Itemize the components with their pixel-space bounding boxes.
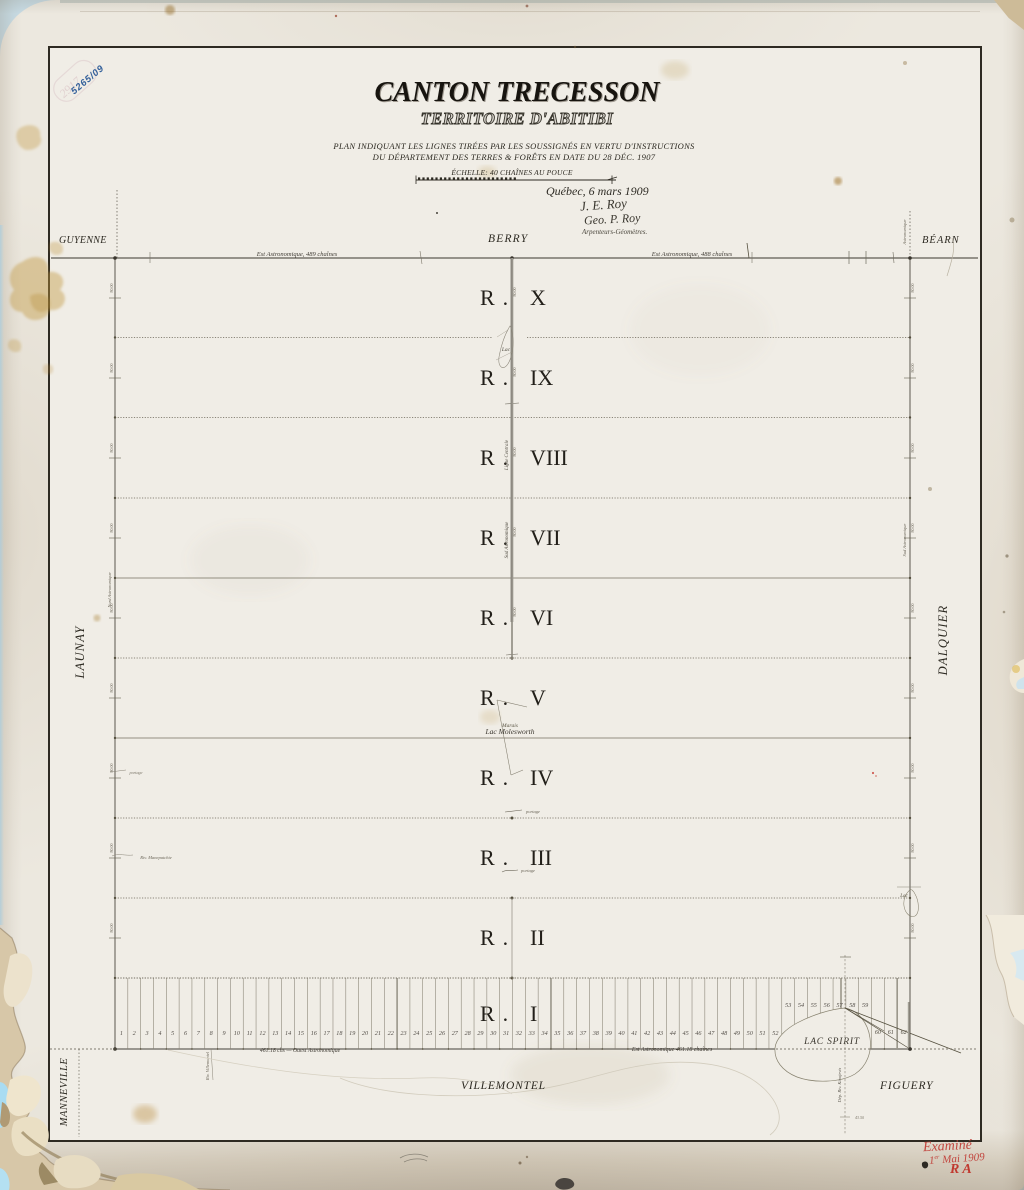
svg-text:LAC SPIRIT: LAC SPIRIT bbox=[803, 1037, 860, 1047]
svg-text:59: 59 bbox=[862, 1002, 868, 1009]
svg-text:80.00: 80.00 bbox=[109, 764, 114, 773]
svg-text:20: 20 bbox=[362, 1030, 369, 1037]
svg-text:28: 28 bbox=[465, 1030, 472, 1037]
svg-text:portage: portage bbox=[128, 770, 142, 775]
svg-text:30: 30 bbox=[489, 1030, 497, 1037]
svg-text:22: 22 bbox=[388, 1030, 394, 1037]
svg-text:60: 60 bbox=[875, 1030, 881, 1036]
svg-text:Dép. Riv. Kinojevis: Dép. Riv. Kinojevis bbox=[837, 1067, 842, 1103]
svg-text:37: 37 bbox=[579, 1030, 587, 1037]
svg-text:R .: R . bbox=[480, 605, 509, 630]
svg-text:VI: VI bbox=[530, 605, 553, 630]
svg-text:18: 18 bbox=[336, 1030, 343, 1037]
svg-text:39: 39 bbox=[605, 1030, 612, 1037]
svg-text:80.00: 80.00 bbox=[910, 444, 915, 453]
svg-text:Sud Astronomique: Sud Astronomique bbox=[505, 521, 510, 558]
svg-text:51: 51 bbox=[759, 1030, 765, 1037]
svg-text:31: 31 bbox=[502, 1030, 509, 1037]
svg-text:41: 41 bbox=[631, 1030, 637, 1037]
svg-text:Astronomique: Astronomique bbox=[902, 219, 907, 245]
svg-text:Est Astronomique, 488 chaînes: Est Astronomique, 488 chaînes bbox=[651, 251, 733, 258]
svg-text:46: 46 bbox=[695, 1030, 702, 1037]
svg-text:X: X bbox=[530, 285, 546, 310]
svg-text:IX: IX bbox=[530, 365, 553, 390]
svg-text:25: 25 bbox=[426, 1030, 432, 1037]
svg-text:48: 48 bbox=[721, 1030, 728, 1037]
svg-text:49: 49 bbox=[734, 1030, 740, 1037]
svg-text:53: 53 bbox=[785, 1002, 791, 1009]
svg-text:80.00: 80.00 bbox=[109, 844, 114, 853]
svg-text:54: 54 bbox=[798, 1002, 804, 1009]
svg-text:Est Astronomique 461.18 chaîn: Est Astronomique 461.18 chaînes bbox=[631, 1046, 713, 1053]
svg-text:55: 55 bbox=[811, 1002, 817, 1009]
svg-text:80.00: 80.00 bbox=[910, 364, 915, 373]
svg-text:80.00: 80.00 bbox=[109, 364, 114, 373]
svg-text:Lac Molesworth: Lac Molesworth bbox=[485, 727, 535, 736]
svg-text:80.00: 80.00 bbox=[910, 764, 915, 773]
svg-text:I: I bbox=[530, 1001, 537, 1026]
svg-text:80.00: 80.00 bbox=[109, 444, 114, 453]
svg-text:VIII: VIII bbox=[530, 445, 568, 470]
svg-text:R .: R . bbox=[480, 365, 509, 390]
svg-text:80.00: 80.00 bbox=[910, 524, 915, 533]
svg-text:40: 40 bbox=[618, 1030, 625, 1037]
svg-text:80.00: 80.00 bbox=[910, 924, 915, 933]
svg-text:80.00: 80.00 bbox=[512, 528, 517, 537]
svg-text:19: 19 bbox=[349, 1030, 355, 1037]
svg-text:21: 21 bbox=[375, 1030, 381, 1037]
svg-text:61: 61 bbox=[888, 1030, 894, 1036]
svg-text:56: 56 bbox=[824, 1002, 831, 1009]
svg-text:42: 42 bbox=[644, 1030, 650, 1037]
svg-text:R .: R . bbox=[480, 765, 509, 790]
svg-text:Ligne Centrale: Ligne Centrale bbox=[505, 439, 510, 471]
svg-text:R .: R . bbox=[480, 285, 509, 310]
svg-text:58: 58 bbox=[849, 1002, 856, 1009]
svg-text:32: 32 bbox=[515, 1030, 522, 1037]
svg-text:80.00: 80.00 bbox=[910, 284, 915, 293]
svg-text:R .: R . bbox=[480, 845, 509, 870]
svg-text:80.00: 80.00 bbox=[109, 684, 114, 693]
svg-text:R .: R . bbox=[480, 1001, 509, 1026]
svg-text:52: 52 bbox=[772, 1030, 778, 1037]
svg-text:Nord Astronomique: Nord Astronomique bbox=[107, 572, 112, 608]
svg-text:24: 24 bbox=[413, 1030, 419, 1037]
svg-text:27: 27 bbox=[452, 1030, 459, 1037]
svg-text:44: 44 bbox=[670, 1030, 676, 1037]
svg-text:34: 34 bbox=[541, 1030, 548, 1037]
svg-text:23: 23 bbox=[400, 1030, 406, 1037]
svg-text:43: 43 bbox=[657, 1030, 663, 1037]
svg-text:38: 38 bbox=[592, 1030, 600, 1037]
svg-text:Sud Astronomique: Sud Astronomique bbox=[902, 524, 907, 557]
svg-text:80.00: 80.00 bbox=[512, 448, 517, 457]
svg-text:36: 36 bbox=[566, 1030, 574, 1037]
svg-text:17: 17 bbox=[324, 1030, 331, 1037]
svg-text:portage: portage bbox=[525, 809, 540, 814]
svg-text:80.00: 80.00 bbox=[910, 844, 915, 853]
svg-text:V: V bbox=[530, 685, 546, 710]
svg-text:IV: IV bbox=[530, 765, 553, 790]
svg-text:50: 50 bbox=[747, 1030, 754, 1037]
svg-text:80.00: 80.00 bbox=[109, 524, 114, 533]
svg-text:III: III bbox=[530, 845, 552, 870]
svg-text:45: 45 bbox=[683, 1030, 689, 1037]
svg-text:Lac: Lac bbox=[501, 347, 511, 353]
svg-text:29: 29 bbox=[477, 1030, 483, 1037]
svg-text:R .: R . bbox=[480, 925, 509, 950]
svg-text:33: 33 bbox=[528, 1030, 535, 1037]
svg-text:Est Astronomique, 489 chaînes: Est Astronomique, 489 chaînes bbox=[256, 251, 338, 258]
svg-text:80.00: 80.00 bbox=[109, 284, 114, 293]
svg-text:43.50: 43.50 bbox=[855, 1115, 864, 1120]
svg-text:Lac: Lac bbox=[899, 894, 908, 899]
svg-text:II: II bbox=[530, 925, 545, 950]
svg-text:80.00: 80.00 bbox=[512, 368, 517, 377]
svg-text:47: 47 bbox=[708, 1030, 715, 1037]
svg-text:80.00: 80.00 bbox=[910, 684, 915, 693]
svg-text:80.00: 80.00 bbox=[512, 288, 517, 297]
svg-text:35: 35 bbox=[553, 1030, 560, 1037]
svg-text:80.00: 80.00 bbox=[512, 608, 517, 617]
svg-text:26: 26 bbox=[439, 1030, 446, 1037]
svg-text:80.00: 80.00 bbox=[910, 604, 915, 613]
svg-text:VII: VII bbox=[530, 525, 561, 550]
svg-text:16: 16 bbox=[311, 1030, 318, 1037]
svg-text:R .: R . bbox=[480, 685, 509, 710]
